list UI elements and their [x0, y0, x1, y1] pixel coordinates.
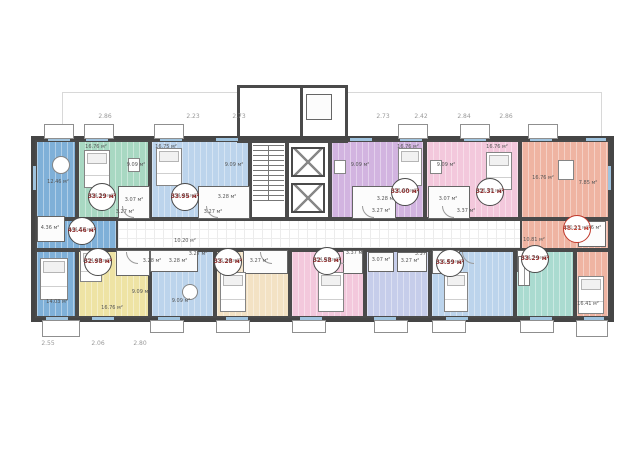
room-area-label: 3.37 м² — [415, 251, 434, 257]
dimension-label: 2.06 — [91, 340, 104, 347]
dimension-label: 2.86 — [499, 113, 512, 120]
room-area-label: 10.20 м² — [174, 238, 196, 244]
window — [608, 166, 611, 190]
room-area-label: 16.76 м² — [532, 175, 554, 181]
bed-icon — [318, 272, 344, 312]
room-area-label: 16.41 м² — [577, 301, 599, 307]
area-badge-peach[interactable]: 33.28 м²(35.16 м²) — [214, 248, 242, 276]
room-area-label: 16.75 м² — [155, 144, 177, 150]
table-icon — [334, 160, 346, 174]
floor-plan-canvas: 43.46 м²(44.73 м²) 33.29 м²(34.34 м²) 33… — [0, 0, 644, 470]
bed-icon — [220, 272, 246, 312]
room-area-label: 12.46 м² — [47, 179, 69, 185]
dimension-label: 2.73 — [376, 113, 389, 120]
window — [92, 317, 114, 320]
balcony — [576, 320, 608, 337]
balcony — [150, 320, 184, 333]
area-badge-pink-south[interactable]: 32.58 м²(34.05 м²) — [313, 247, 341, 275]
area-badge-lightblue-south[interactable]: 33.59 м²(35.54 м²) — [436, 249, 464, 277]
room-area-label: 3.07 м² — [372, 257, 391, 263]
room-area-label: 9.09 м² — [127, 162, 146, 168]
dimension-label: 2.55 — [41, 340, 54, 347]
table-icon — [558, 160, 574, 180]
bed-icon — [84, 150, 110, 188]
balcony — [216, 320, 250, 333]
balcony — [432, 320, 466, 333]
window — [216, 138, 238, 141]
room-area-label: 3.07 м² — [439, 196, 458, 202]
room-area-label: 9.09 м² — [351, 162, 370, 168]
balcony — [44, 124, 74, 139]
room-area-label: 14.03 м² — [46, 299, 68, 305]
room-area-label: 9.09 м² — [132, 289, 151, 295]
area-badge-purple[interactable]: 33.00 м²(33.97 м²) — [391, 178, 419, 206]
balcony — [460, 124, 490, 139]
room-area-label: 10.81 м² — [523, 237, 545, 243]
area-badge-west[interactable]: 43.46 м²(44.73 м²) — [68, 217, 96, 245]
dimension-label: 2.73 — [232, 113, 245, 120]
balcony — [292, 320, 326, 333]
room-area-label: 3.27 м² — [372, 208, 391, 214]
area-badge-pink-north[interactable]: 32.31 м²(33.79 м²) — [476, 178, 504, 206]
window — [586, 138, 606, 141]
room-area-label: 3.07 м² — [125, 197, 144, 203]
room-area-label: 3.27 м² — [250, 258, 269, 264]
room-area-label: 3.28 м² — [218, 194, 237, 200]
dimension-label: 2.23 — [186, 113, 199, 120]
room-area-label: 16.76 м² — [85, 144, 107, 150]
area-badge-east[interactable]: 48.21 м²(50.13 м²) — [563, 215, 591, 243]
room-area-label: 3.27 м² — [204, 209, 223, 215]
room-area-label: 3.27 м² — [189, 251, 208, 257]
bed-icon — [156, 148, 182, 186]
dimension-label: 2.80 — [133, 340, 146, 347]
room-area-label: 16.76 м² — [101, 305, 123, 311]
balcony — [84, 124, 114, 139]
room-area-label: 4.36 м² — [41, 225, 60, 231]
round-table-icon — [52, 156, 70, 174]
room-area-label: 9.09 м² — [437, 162, 456, 168]
balcony — [154, 124, 184, 139]
room-area-label: 9.09 м² — [225, 162, 244, 168]
balcony — [398, 124, 428, 139]
room-area-label: 3.28 м² — [143, 258, 162, 264]
room-area-label: 3.28 м² — [169, 258, 188, 264]
window — [33, 166, 36, 190]
bed-icon — [444, 272, 468, 312]
vent-shaft — [306, 94, 332, 120]
balcony — [374, 320, 408, 333]
area-badge-yellow[interactable]: 32.98 м²(34.95 м²) — [84, 248, 112, 276]
balcony — [528, 124, 558, 139]
room-area-label: 3.27 м² — [116, 209, 135, 215]
balcony — [520, 320, 554, 333]
area-badge-lightblue-north[interactable]: 33.95 м²(34.93 м²) — [171, 183, 199, 211]
dimension-label: 2.84 — [457, 113, 470, 120]
core-divider-wall — [300, 88, 303, 140]
bed-icon — [578, 276, 604, 314]
room-area-label: 16.76 м² — [486, 144, 508, 150]
room-area-label: 16.76 м² — [397, 144, 419, 150]
room-area-label: 3.27 м² — [401, 258, 420, 264]
area-badge-green[interactable]: 33.29 м²(34.34 м²) — [88, 183, 116, 211]
area-badge-teal[interactable]: 33.29 м²(34.74 м²) — [521, 245, 549, 273]
bed-icon — [40, 258, 68, 300]
dimension-label: 2.42 — [414, 113, 427, 120]
dimension-label: 2.86 — [98, 113, 111, 120]
room-area-label: 7.85 м² — [579, 180, 598, 186]
room-area-label: 9.09 м² — [172, 298, 191, 304]
balcony — [42, 320, 80, 337]
room-area-label: 3.37 м² — [457, 208, 476, 214]
window — [350, 138, 372, 141]
room-area-label: 3.37 м² — [346, 250, 365, 256]
